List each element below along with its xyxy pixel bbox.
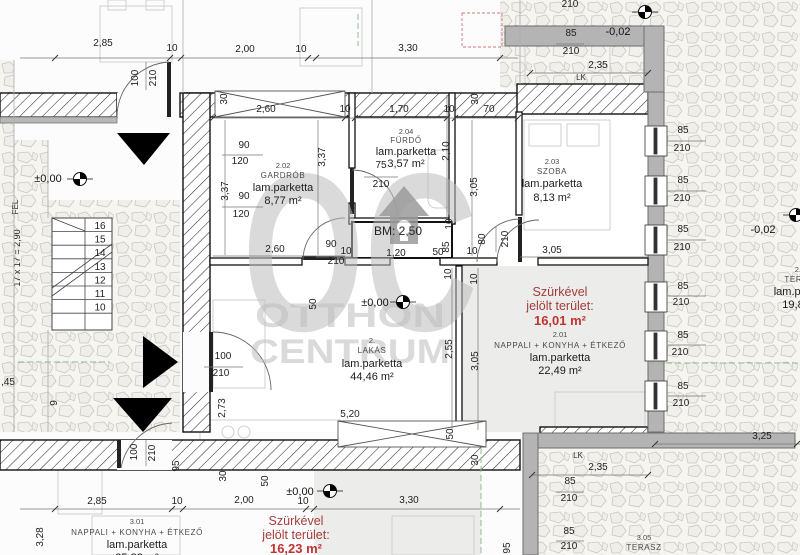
room-floor: lam.parketta (376, 146, 437, 158)
door-leaf (167, 62, 171, 117)
watermark-line1: OTTHON (255, 297, 445, 335)
dim-label: 2,55 (444, 339, 455, 359)
dim-label: 3,25 (752, 431, 772, 442)
room-area: 22,49 m² (538, 365, 582, 377)
wall-bottomright-v (523, 433, 538, 555)
lk-label: LK (576, 73, 586, 82)
stair-step-number: 16 (94, 221, 106, 232)
dim-label: 85 (677, 330, 689, 341)
highlight-title-1: Szürkével (533, 285, 588, 299)
wall-strip-gray (0, 117, 117, 123)
highlight-title-2: jelölt terület: (525, 299, 593, 313)
dim-label: 100 (129, 443, 140, 460)
room-number: 2.04 (399, 127, 414, 136)
stair-step-number: 12 (94, 275, 106, 286)
room-name: FÜRDŐ (390, 136, 421, 145)
dim-label: 210 (561, 493, 578, 504)
room-area: 19,82 m² (782, 299, 800, 311)
highlight-value: 16,01 m² (534, 313, 587, 328)
stair-step-number: 10 (94, 303, 106, 314)
wall-top-left (0, 93, 117, 117)
dim-label: 2,35 (588, 60, 608, 71)
highlight-title-2: jelölt terület: (261, 528, 329, 542)
wall-topright-v (644, 26, 664, 92)
dim-label: 85 (677, 175, 689, 186)
dim-label: 210 (147, 444, 158, 461)
room-name: NAPPALI + KONYHA + ÉTKEZŐ (494, 341, 626, 350)
door-leaf (117, 440, 121, 468)
dim-label: 210 (561, 541, 578, 552)
dim-label: 85 (677, 381, 689, 392)
room-number: 2. (369, 336, 375, 345)
dim-label: 50 (432, 247, 444, 258)
room-area: 44,46 m² (350, 371, 394, 383)
dim-label: 90 (325, 239, 337, 250)
dim-label: 100 (130, 69, 141, 86)
room-name: SZOBA (537, 167, 567, 176)
stair-step-numbers: 16151413121110 (94, 221, 106, 314)
dim-label: 3,30 (399, 495, 419, 506)
gray-marked-area-3 (314, 470, 481, 555)
dim-label: 85 (564, 476, 576, 487)
dim-label: 85 (563, 526, 575, 537)
dim-label: 3,28 (35, 527, 46, 547)
dim-label: 85 (677, 224, 689, 235)
stair-step-number: 14 (94, 248, 106, 259)
wall-topright-h (505, 26, 662, 46)
room-floor: lam.parketta (522, 178, 583, 190)
dim-label: 3,37 (317, 147, 328, 167)
wall-top-szoba (517, 84, 648, 114)
room-number: 2.05 (795, 265, 800, 274)
room-area: 8,13 m² (533, 192, 571, 204)
highlight3-block: Szürkével jelölt terület: 16,23 m² (261, 514, 329, 555)
dim-label: 210 (674, 143, 691, 154)
room-area: 3,57 m² (387, 158, 425, 170)
dim-label: 10 (339, 104, 351, 115)
dim-label: 9 (49, 400, 60, 406)
level-text: ±0,00 (34, 173, 61, 185)
dim-label: 210 (213, 368, 230, 379)
dim-label: 30 (218, 470, 229, 482)
dim-label: 30 (219, 93, 230, 105)
dim-label: 210 (672, 347, 689, 358)
dim-label: 2,73 (217, 398, 228, 418)
room-number: 3.01 (130, 517, 145, 526)
dim-label: 90 (238, 191, 250, 202)
dim-label: 2,10 (441, 141, 452, 161)
room-name: TERASZ (626, 543, 661, 552)
dim-label: 3,37 (220, 181, 231, 201)
stair-step-number: 11 (95, 289, 106, 300)
dim-label: 85 (677, 281, 689, 292)
dim-label: 85 (677, 125, 689, 136)
dim-label: 2,35 (588, 462, 608, 473)
dim-label: 210 (500, 230, 511, 247)
door-leaf (209, 332, 213, 392)
dim-label: 210 (563, 46, 580, 57)
dim-label: 210 (373, 179, 390, 190)
dim-label: 2,60 (256, 104, 276, 115)
room-name: TERASZ (784, 275, 800, 284)
dim-label: 210 (674, 242, 691, 253)
dim-label: 30 (470, 93, 481, 105)
stair-formula: 17 x 17 = 2,90 (12, 229, 22, 286)
dim-label: 70 (483, 104, 495, 115)
dim-label: 210 (148, 69, 159, 86)
level-text: ±0,00 (361, 297, 388, 309)
dim-label: 10 (295, 44, 307, 55)
dim-label: 2,60 (265, 244, 285, 255)
stair-direction-label: FEL (11, 199, 20, 214)
room-floor: lam.parketta (342, 358, 403, 370)
highlight-title-1: Szürkével (269, 514, 324, 528)
dim-label: 90 (238, 140, 250, 151)
dim-label: 80 (477, 233, 488, 245)
dim-label: 1,20 (386, 248, 406, 259)
dim-label: 3,05 (542, 245, 562, 256)
dim-label: 5,20 (340, 409, 360, 420)
dim-label: 95 (502, 542, 513, 554)
stair-step-number: 15 (94, 235, 106, 246)
dim-label: 10 (466, 246, 478, 257)
room-number: 2.03 (545, 157, 560, 166)
dim-label: 50 (445, 428, 456, 440)
room-name: GARDRÓB (261, 171, 306, 180)
room-floor: lam.parketta (253, 182, 314, 194)
dim-label: 2,85 (87, 496, 107, 507)
dim-label: 10 (443, 104, 455, 115)
room-name: LAKÁS (358, 346, 387, 355)
dim-label: 210 (328, 256, 345, 267)
dim-label: 50 (308, 298, 319, 310)
room-number: 2.02 (276, 161, 291, 170)
dim-label: 2,00 (234, 495, 254, 506)
dim-label: 2,85 (93, 38, 113, 49)
room-number: 3.05 (637, 533, 652, 542)
dim-label: 2,00 (235, 44, 255, 55)
dim-label: 95 (171, 460, 182, 472)
floor-plan: 16151413121110 FEL 17 x 17 = 2,90 OC (0, 0, 800, 555)
dim-label: 10 (166, 43, 178, 54)
dim-label: 10 (444, 218, 455, 230)
floor-plan-drawing: 16151413121110 FEL 17 x 17 = 2,90 OC (0, 0, 800, 555)
dim-label: 10 (469, 273, 480, 285)
dim-label: 210 (562, 0, 579, 10)
lk-label: LK (573, 451, 583, 460)
dim-label: 120 (233, 209, 250, 220)
dim-label: 120 (232, 156, 249, 167)
dim-label: 10 (297, 496, 309, 507)
room-area: 8,77 m² (264, 195, 302, 207)
dim-label: 210 (673, 398, 690, 409)
ceiling-height-label: BM: 2,50 (374, 224, 422, 238)
dim-label: 210 (674, 193, 691, 204)
room-name: NAPPALI + KONYHA + ÉTKEZŐ (71, 528, 203, 537)
room-number: 2.01 (553, 330, 568, 339)
room-floor: lam.parketta (774, 286, 800, 298)
dim-label: 210 (673, 297, 690, 308)
dim-label: 3,05 (469, 177, 480, 197)
dim-label: 30 (470, 454, 481, 466)
dim-label: 1,70 (389, 104, 409, 115)
room-floor: lam.parketta (530, 352, 591, 364)
dim-label: 10 (443, 268, 454, 280)
dim-label: 85 (565, 28, 577, 39)
dim-label: ,45 (1, 377, 15, 388)
stair-step-number: 13 (94, 262, 106, 273)
dim-label: 100 (215, 351, 232, 362)
highlight-value: 16,23 m² (270, 541, 323, 555)
dim-label: 10 (171, 496, 183, 507)
level-text: -0,02 (750, 224, 775, 236)
room-floor: lam.parketta (107, 539, 168, 551)
dim-label: 50 (260, 475, 271, 487)
dim-label: 3,30 (398, 43, 418, 54)
level-text: -0,02 (605, 26, 630, 38)
dim-label: 75 (375, 160, 387, 171)
dim-label: 3,05 (470, 351, 481, 371)
